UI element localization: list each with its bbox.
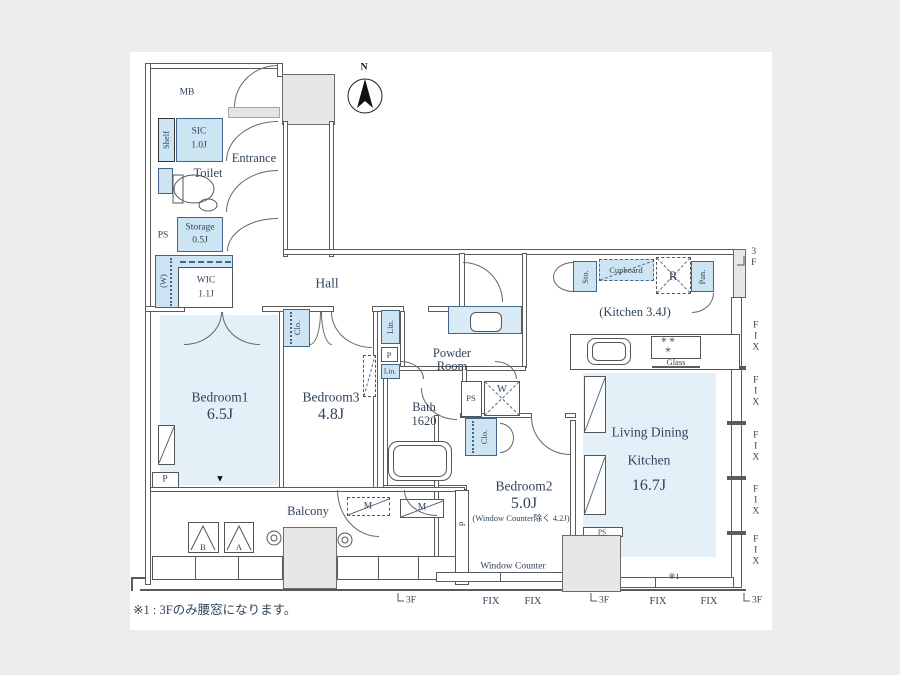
- window-mullion: [727, 476, 746, 480]
- closet2-label: Clo.: [480, 430, 489, 444]
- wic-area-label: 1.1J: [198, 290, 214, 300]
- wall: [373, 311, 378, 491]
- washer-label: W: [497, 385, 507, 396]
- closet3-label: Clo.: [293, 321, 302, 335]
- floor3-label: 3F: [406, 596, 416, 606]
- pipe-shaft: [455, 490, 469, 585]
- wic-inner-box: [178, 267, 233, 308]
- fix-window-label: FIX: [483, 597, 500, 608]
- fix-window-label-vertical: FIX: [750, 321, 760, 354]
- wall: [522, 253, 527, 368]
- bedroom1-side-window: [158, 425, 175, 465]
- bedroom3-label: Bedroom3: [303, 390, 360, 404]
- wall: [145, 63, 151, 585]
- ps-bath-label: PS: [466, 394, 475, 403]
- storage-area-label: 0.5J: [192, 236, 208, 246]
- stove: [651, 336, 701, 359]
- wic-label: WIC: [197, 276, 215, 286]
- kitchen-storage-label: Sto.: [581, 270, 590, 283]
- meter-label: M: [364, 502, 372, 512]
- pipe-box-west-label: P: [162, 475, 167, 485]
- fix-window-label-vertical: FIX: [750, 485, 760, 518]
- fix-window-label: FIX: [650, 597, 667, 608]
- entry-triangle-marker: ▼: [215, 475, 224, 485]
- toilet-counter-box: [158, 168, 173, 194]
- window-counter-label: Window Counter: [480, 562, 545, 572]
- fix-window-label: FIX: [525, 597, 542, 608]
- entrance-label: Entrance: [232, 152, 276, 165]
- floor3-label-vertical: 3F: [748, 247, 758, 269]
- railing-divider: [418, 557, 419, 579]
- meter-label: M: [418, 503, 426, 513]
- window-counter-sill: [436, 572, 569, 582]
- kitchen-area-label: (Kitchen 3.4J): [599, 306, 671, 319]
- wall: [283, 121, 288, 257]
- bedroom2-area-label: 5.0J: [511, 496, 537, 512]
- wic-w-label: (W): [159, 274, 168, 288]
- outer-boundary-line: [140, 589, 746, 591]
- bath-label: Bath: [412, 401, 436, 414]
- outer-step-line: [131, 577, 145, 579]
- floor3-label: 3F: [599, 596, 609, 606]
- south-pillar: [562, 535, 621, 592]
- pipe-label: P: [387, 351, 392, 360]
- storage-label: Storage: [185, 223, 214, 233]
- wic-shelf-dashed: [180, 261, 231, 263]
- ldk-label-1: Living Dining: [612, 425, 689, 439]
- kitchen-sink-inner: [592, 342, 626, 361]
- compass-n-label: N: [361, 63, 368, 73]
- vanity-sink: [470, 312, 502, 332]
- balcony-label: Balcony: [287, 505, 329, 518]
- refrigerator-label: R: [669, 270, 677, 283]
- common-area-block: [282, 74, 335, 125]
- wall: [283, 249, 745, 255]
- cupboard-label: Cupboard: [609, 266, 643, 275]
- floor-plan: MB Shelf SIC 1.0J Entrance Toilet PS Sto…: [0, 0, 900, 675]
- ldk-area-label: 16.7J: [632, 478, 666, 494]
- entrance-step: [228, 107, 280, 118]
- pantry-label: Pan.: [698, 270, 707, 285]
- fix-window-label-vertical: FIX: [750, 431, 760, 464]
- pipe-shaft-label: P: [458, 522, 467, 527]
- bedroom2-label: Bedroom2: [496, 479, 553, 493]
- burner-icon: ✳ ✳: [661, 336, 675, 344]
- bathtub-inner: [393, 445, 447, 477]
- tall-cabinet-2: [584, 455, 606, 515]
- burner-icon: ✳: [665, 346, 671, 354]
- linen-upper-label: Lin.: [386, 320, 395, 334]
- pillar: [733, 249, 746, 298]
- bath-size-label: 1620: [412, 415, 437, 428]
- bedroom1-area-label: 6.5J: [207, 407, 233, 423]
- ps-pillar-label: PS: [598, 528, 606, 536]
- powder-label-2: Room: [437, 360, 468, 373]
- ps-label-upper: PS: [158, 231, 169, 241]
- bedroom3-area-label: 4.8J: [318, 407, 344, 423]
- balcony-pillar: [283, 527, 337, 589]
- fix-window-label-vertical: FIX: [750, 535, 760, 568]
- railing-divider: [378, 557, 379, 579]
- tall-cabinet-1: [584, 376, 606, 433]
- sic-label: SIC: [192, 127, 207, 137]
- fix-window-label-vertical: FIX: [750, 376, 760, 409]
- bedroom2-note-label: (Window Counter除く 4.2J): [472, 514, 569, 523]
- linen-lower-label: Lin.: [384, 367, 396, 375]
- dashed-partition: [363, 355, 376, 397]
- fix-window-label: FIX: [701, 597, 718, 608]
- bedroom1-label: Bedroom1: [192, 390, 249, 404]
- hatch-b-label: B: [200, 543, 206, 552]
- floor3-label: 3F: [752, 596, 762, 606]
- closet-bedroom2-pipe: [472, 421, 474, 453]
- window-mullion: [655, 578, 656, 587]
- hall-label: Hall: [315, 276, 338, 290]
- powder-label-1: Powder: [433, 347, 471, 360]
- wic-hanger-pipe: [170, 258, 172, 306]
- wall: [329, 121, 334, 257]
- sic-area-label: 1.0J: [191, 141, 207, 151]
- room-label-mb: MB: [180, 88, 195, 98]
- wall: [400, 311, 405, 368]
- window-mullion: [727, 421, 746, 425]
- footnote: ※1 : 3Fのみ腰窓になります。: [133, 604, 296, 617]
- window-mullion: [500, 573, 501, 581]
- balcony-railing-west: [152, 556, 283, 580]
- outer-step-line: [131, 577, 133, 591]
- hatch-a-label: A: [236, 543, 242, 552]
- ldk-label-2: Kitchen: [628, 453, 671, 467]
- window-mullion: [727, 531, 746, 535]
- railing-divider: [195, 557, 196, 579]
- ref1-marker: ※1: [668, 572, 679, 581]
- toilet-label: Toilet: [194, 167, 223, 180]
- glass-top-label: Glass: [667, 358, 686, 367]
- shelf-label: Shelf: [162, 131, 171, 149]
- railing-divider: [238, 557, 239, 579]
